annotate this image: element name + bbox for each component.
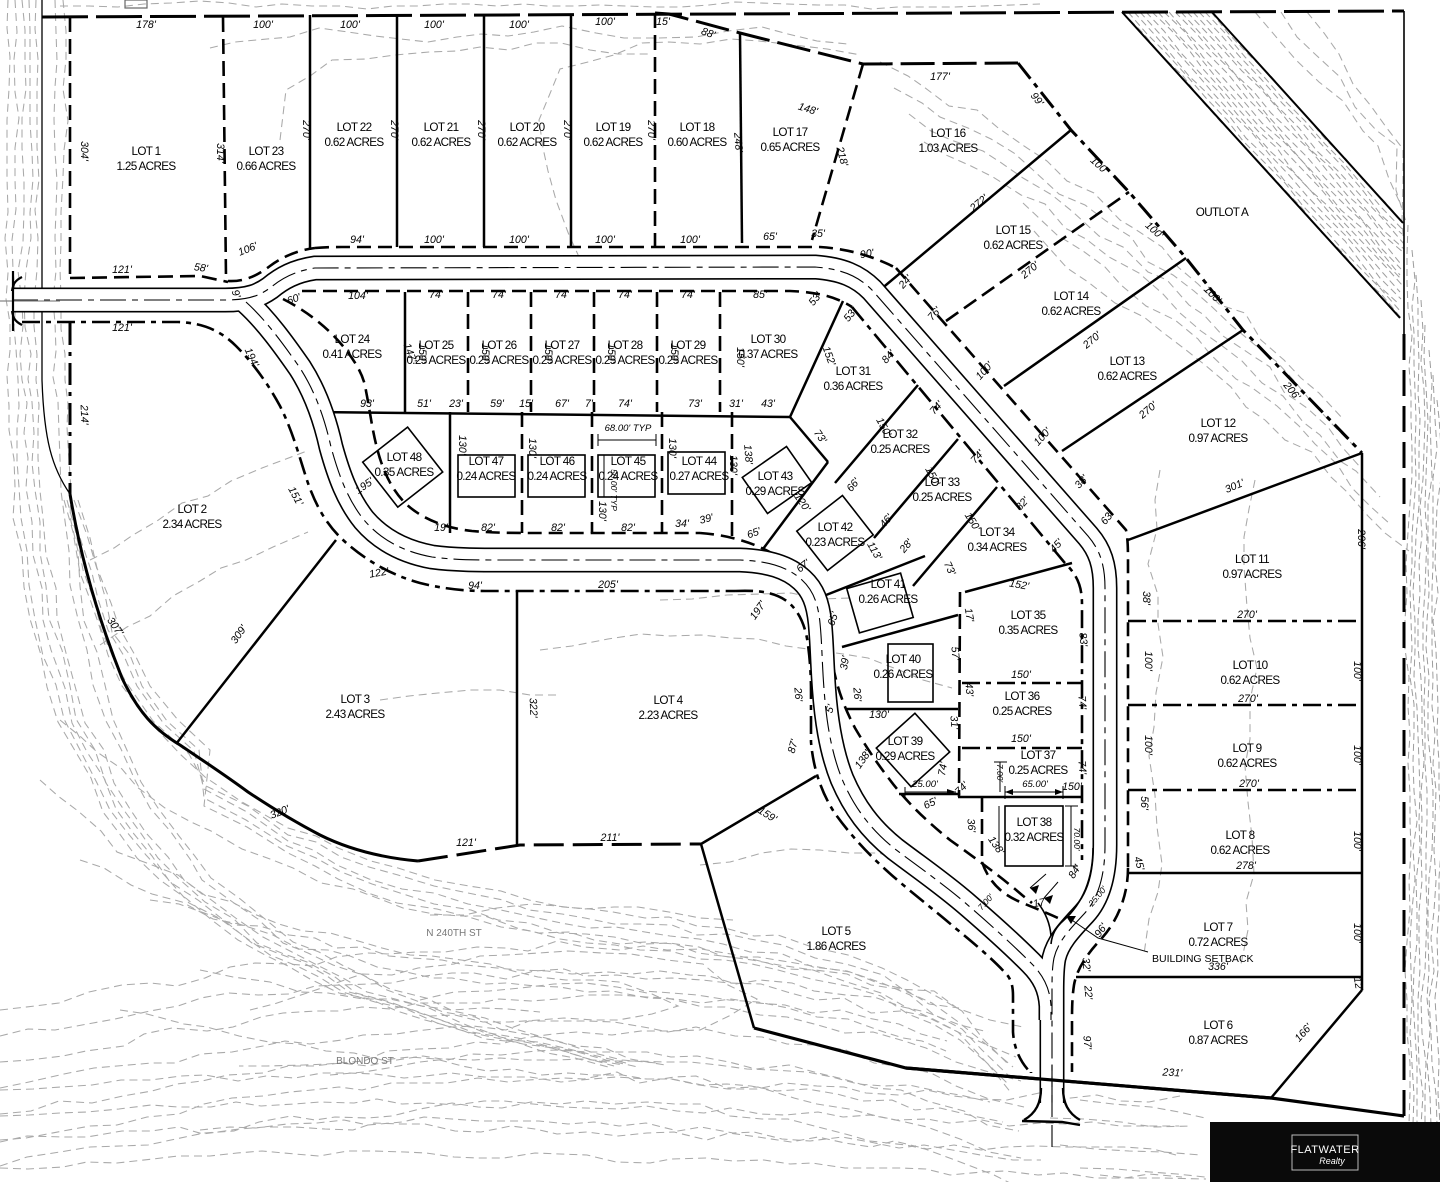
- svg-text:LOT 13: LOT 13: [1110, 355, 1145, 368]
- svg-text:130': 130': [666, 438, 678, 459]
- svg-text:0.24 ACRES: 0.24 ACRES: [456, 470, 516, 483]
- svg-text:57': 57': [948, 646, 961, 662]
- svg-text:0.36 ACRES: 0.36 ACRES: [823, 380, 883, 393]
- svg-text:2.34 ACRES: 2.34 ACRES: [162, 518, 222, 531]
- svg-text:270': 270': [475, 119, 487, 141]
- svg-text:74': 74': [1075, 695, 1088, 711]
- svg-text:0.25 ACRES: 0.25 ACRES: [992, 705, 1052, 718]
- svg-text:0.62 ACRES: 0.62 ACRES: [583, 136, 643, 149]
- svg-text:104': 104': [348, 290, 369, 302]
- svg-text:130': 130': [727, 455, 739, 476]
- svg-text:LOT 18: LOT 18: [680, 121, 715, 134]
- svg-text:70.00': 70.00': [1072, 828, 1082, 851]
- svg-text:100': 100': [509, 19, 530, 31]
- svg-text:31': 31': [947, 715, 960, 731]
- svg-text:0.37 ACRES: 0.37 ACRES: [738, 348, 798, 361]
- svg-text:0.26 ACRES: 0.26 ACRES: [858, 593, 918, 606]
- svg-text:150': 150': [1062, 781, 1083, 793]
- svg-text:OUTLOT A: OUTLOT A: [1196, 206, 1249, 219]
- svg-text:15': 15': [656, 16, 671, 28]
- svg-text:LOT 4: LOT 4: [653, 694, 683, 707]
- svg-text:178': 178': [136, 19, 157, 31]
- svg-text:73': 73': [688, 398, 703, 410]
- svg-text:7.00': 7.00': [995, 764, 1005, 783]
- svg-text:LOT 36: LOT 36: [1005, 690, 1040, 703]
- svg-text:LOT 48: LOT 48: [387, 451, 422, 464]
- svg-text:74': 74': [618, 398, 633, 410]
- svg-text:0.62 ACRES: 0.62 ACRES: [1217, 757, 1277, 770]
- svg-text:22': 22': [1081, 984, 1094, 1001]
- svg-text:94': 94': [468, 580, 483, 592]
- svg-text:97': 97': [1080, 1035, 1093, 1051]
- svg-text:LOT 41: LOT 41: [871, 578, 906, 591]
- svg-text:68.00' TYP: 68.00' TYP: [605, 423, 652, 434]
- svg-text:205': 205': [597, 579, 619, 591]
- svg-text:150': 150': [1011, 733, 1032, 745]
- svg-text:83': 83': [1076, 632, 1089, 648]
- svg-text:270': 270': [388, 119, 400, 141]
- svg-text:100': 100': [1351, 923, 1363, 944]
- svg-text:43': 43': [761, 398, 776, 410]
- svg-text:BUILDING SETBACK: BUILDING SETBACK: [1152, 953, 1254, 965]
- svg-text:36': 36': [964, 818, 977, 834]
- svg-text:121': 121': [112, 322, 133, 334]
- svg-text:100': 100': [680, 234, 701, 246]
- svg-text:121': 121': [112, 264, 133, 276]
- svg-text:LOT 9: LOT 9: [1232, 742, 1261, 755]
- svg-text:0.66 ACRES: 0.66 ACRES: [236, 160, 296, 173]
- svg-text:0.35 ACRES: 0.35 ACRES: [998, 624, 1058, 637]
- svg-text:138': 138': [741, 444, 755, 466]
- svg-text:150': 150': [479, 343, 491, 364]
- svg-text:LOT 46: LOT 46: [540, 455, 575, 468]
- svg-text:2.43 ACRES: 2.43 ACRES: [325, 708, 385, 721]
- svg-text:0.97 ACRES: 0.97 ACRES: [1188, 432, 1248, 445]
- svg-text:0.25 ACRES: 0.25 ACRES: [870, 443, 930, 456]
- svg-text:58': 58': [193, 261, 209, 275]
- svg-text:150': 150': [542, 343, 554, 364]
- svg-text:314': 314': [214, 143, 226, 164]
- svg-text:LOT 38: LOT 38: [1017, 816, 1052, 829]
- svg-text:270': 270': [1237, 693, 1259, 705]
- svg-text:LOT 23: LOT 23: [249, 145, 284, 158]
- svg-text:0.24 ACRES: 0.24 ACRES: [598, 470, 658, 483]
- svg-text:74': 74': [555, 289, 570, 301]
- svg-text:1.86 ACRES: 1.86 ACRES: [806, 940, 866, 953]
- svg-text:0.25 ACRES: 0.25 ACRES: [658, 354, 718, 367]
- svg-text:322': 322': [527, 698, 540, 719]
- svg-text:LOT 10: LOT 10: [1233, 659, 1269, 672]
- svg-text:LOT 12: LOT 12: [1201, 417, 1236, 430]
- svg-text:100': 100': [1351, 831, 1363, 852]
- svg-text:100': 100': [1351, 745, 1363, 766]
- svg-text:278': 278': [1235, 860, 1257, 872]
- svg-text:65': 65': [763, 231, 778, 243]
- svg-text:0.87 ACRES: 0.87 ACRES: [1188, 1034, 1248, 1047]
- svg-text:0.60 ACRES: 0.60 ACRES: [667, 136, 727, 149]
- svg-text:0.65 ACRES: 0.65 ACRES: [760, 141, 820, 154]
- svg-text:150': 150': [668, 343, 680, 364]
- svg-text:0.35 ACRES: 0.35 ACRES: [374, 466, 434, 479]
- svg-text:LOT 31: LOT 31: [836, 365, 871, 378]
- svg-text:38': 38': [1140, 591, 1152, 606]
- svg-text:100': 100': [1142, 651, 1154, 672]
- svg-text:85': 85': [753, 289, 768, 301]
- svg-text:LOT 37: LOT 37: [1021, 749, 1056, 762]
- svg-text:304': 304': [78, 141, 90, 162]
- svg-text:211': 211': [600, 832, 621, 844]
- svg-text:0.62 ACRES: 0.62 ACRES: [497, 136, 557, 149]
- svg-text:74': 74': [618, 289, 633, 301]
- svg-text:0.24 ACRES: 0.24 ACRES: [527, 470, 587, 483]
- svg-text:FLATWATER: FLATWATER: [1290, 1144, 1359, 1156]
- svg-text:100': 100': [595, 234, 616, 246]
- svg-text:100': 100': [509, 234, 530, 246]
- svg-text:LOT 47: LOT 47: [469, 455, 504, 468]
- svg-text:100': 100': [424, 19, 445, 31]
- svg-text:130': 130': [456, 435, 468, 456]
- svg-text:0.62 ACRES: 0.62 ACRES: [1097, 370, 1157, 383]
- svg-text:LOT 22: LOT 22: [337, 121, 372, 134]
- svg-text:56': 56': [1138, 796, 1150, 811]
- svg-text:0.26 ACRES: 0.26 ACRES: [873, 668, 933, 681]
- svg-text:2.23 ACRES: 2.23 ACRES: [638, 709, 698, 722]
- svg-text:0.34 ACRES: 0.34 ACRES: [967, 541, 1027, 554]
- svg-text:LOT 15: LOT 15: [996, 224, 1032, 237]
- svg-text:270': 270': [645, 119, 657, 141]
- svg-text:0.23 ACRES: 0.23 ACRES: [805, 536, 865, 549]
- svg-text:100': 100': [1142, 735, 1154, 756]
- svg-text:130': 130': [596, 501, 608, 522]
- svg-text:0.72 ACRES: 0.72 ACRES: [1188, 936, 1248, 949]
- svg-text:51': 51': [417, 398, 432, 410]
- svg-text:59': 59': [490, 398, 505, 410]
- svg-text:270': 270': [300, 119, 312, 141]
- svg-text:LOT 6: LOT 6: [1203, 1019, 1232, 1032]
- svg-text:LOT 16: LOT 16: [931, 127, 966, 140]
- svg-text:100': 100': [340, 19, 361, 31]
- svg-text:74': 74': [492, 289, 507, 301]
- svg-text:1.25 ACRES: 1.25 ACRES: [116, 160, 176, 173]
- svg-text:130': 130': [526, 438, 538, 459]
- svg-text:0.62 ACRES: 0.62 ACRES: [324, 136, 384, 149]
- svg-text:LOT 11: LOT 11: [1235, 553, 1269, 566]
- svg-text:0.62 ACRES: 0.62 ACRES: [1220, 674, 1280, 687]
- svg-text:231': 231': [1161, 1066, 1183, 1079]
- svg-text:26': 26': [850, 686, 863, 703]
- svg-text:0.62 ACRES: 0.62 ACRES: [1210, 844, 1270, 857]
- svg-text:26': 26': [791, 686, 804, 703]
- svg-text:248': 248': [731, 131, 745, 154]
- svg-text:206': 206': [1355, 528, 1367, 550]
- svg-text:LOT 30: LOT 30: [751, 333, 787, 346]
- svg-text:BLONDO ST: BLONDO ST: [336, 1056, 394, 1067]
- svg-text:LOT 7: LOT 7: [1203, 921, 1232, 934]
- svg-text:214': 214': [78, 404, 91, 426]
- svg-text:93': 93': [360, 398, 375, 410]
- svg-text:150': 150': [1011, 669, 1032, 681]
- svg-text:0.25 ACRES: 0.25 ACRES: [532, 354, 592, 367]
- svg-text:15': 15': [519, 398, 534, 410]
- svg-text:0.62 ACRES: 0.62 ACRES: [983, 239, 1043, 252]
- svg-text:130': 130': [869, 709, 890, 721]
- svg-text:50.00' TYP: 50.00' TYP: [609, 469, 619, 511]
- svg-text:82': 82': [621, 522, 636, 534]
- svg-text:0.25 ACRES: 0.25 ACRES: [595, 354, 655, 367]
- svg-text:LOT 45: LOT 45: [611, 455, 647, 468]
- svg-text:65.00': 65.00': [1022, 779, 1049, 790]
- svg-text:7': 7': [585, 398, 594, 410]
- svg-text:LOT 3: LOT 3: [340, 693, 369, 706]
- svg-text:0.29 ACRES: 0.29 ACRES: [875, 750, 935, 763]
- svg-text:LOT 17: LOT 17: [773, 126, 808, 139]
- svg-text:34': 34': [675, 518, 690, 530]
- svg-text:LOT 40: LOT 40: [886, 653, 922, 666]
- svg-text:67': 67': [555, 398, 570, 410]
- svg-text:31': 31': [729, 398, 744, 410]
- svg-text:23': 23': [448, 398, 464, 410]
- svg-text:LOT 43: LOT 43: [758, 470, 793, 483]
- svg-text:LOT 42: LOT 42: [818, 521, 853, 534]
- svg-text:1.03 ACRES: 1.03 ACRES: [918, 142, 978, 155]
- svg-text:LOT 35: LOT 35: [1011, 609, 1047, 622]
- svg-text:LOT 39: LOT 39: [888, 735, 923, 748]
- svg-text:270': 270': [1236, 609, 1258, 621]
- svg-text:0.62 ACRES: 0.62 ACRES: [1041, 305, 1101, 318]
- svg-text:LOT 44: LOT 44: [682, 455, 718, 468]
- svg-text:82': 82': [481, 522, 496, 534]
- svg-text:0.62 ACRES: 0.62 ACRES: [411, 136, 471, 149]
- svg-text:LOT 19: LOT 19: [596, 121, 631, 134]
- svg-text:32': 32': [1079, 957, 1092, 973]
- svg-text:100': 100': [253, 19, 274, 31]
- svg-text:LOT 20: LOT 20: [510, 121, 546, 134]
- svg-text:100': 100': [424, 234, 445, 246]
- svg-text:Realty: Realty: [1319, 1156, 1345, 1166]
- svg-text:74': 74': [1075, 760, 1088, 776]
- svg-text:150': 150': [734, 347, 746, 368]
- svg-text:LOT 8: LOT 8: [1225, 829, 1254, 842]
- svg-text:0.97 ACRES: 0.97 ACRES: [1222, 568, 1282, 581]
- svg-text:82': 82': [551, 522, 566, 534]
- svg-text:0.32 ACRES: 0.32 ACRES: [1004, 831, 1064, 844]
- svg-text:0.25 ACRES: 0.25 ACRES: [469, 354, 529, 367]
- svg-text:LOT 2: LOT 2: [177, 503, 206, 516]
- svg-text:0.41 ACRES: 0.41 ACRES: [322, 348, 382, 361]
- svg-text:121': 121': [456, 837, 477, 849]
- svg-text:N 240TH ST: N 240TH ST: [426, 928, 482, 939]
- svg-text:LOT 1: LOT 1: [131, 145, 160, 158]
- svg-text:35': 35': [811, 228, 826, 240]
- svg-text:43': 43': [962, 682, 975, 698]
- svg-text:270': 270': [561, 119, 573, 141]
- svg-text:25.00': 25.00': [911, 779, 939, 790]
- svg-text:LOT 24: LOT 24: [335, 333, 371, 346]
- svg-text:270': 270': [1238, 778, 1260, 790]
- svg-text:100': 100': [595, 16, 616, 28]
- svg-text:0.27 ACRES: 0.27 ACRES: [669, 470, 729, 483]
- svg-text:150': 150': [416, 343, 428, 364]
- svg-text:LOT 5: LOT 5: [821, 925, 851, 938]
- svg-text:LOT 34: LOT 34: [980, 526, 1016, 539]
- svg-text:100': 100': [1351, 661, 1363, 682]
- svg-text:0.25 ACRES: 0.25 ACRES: [912, 491, 972, 504]
- svg-text:94': 94': [350, 234, 365, 246]
- svg-text:0.25 ACRES: 0.25 ACRES: [1008, 764, 1068, 777]
- svg-text:19': 19': [434, 522, 449, 534]
- svg-text:LOT 21: LOT 21: [424, 121, 459, 134]
- svg-text:74': 74': [681, 289, 696, 301]
- svg-text:150': 150': [605, 343, 617, 364]
- svg-text:177': 177': [930, 71, 951, 83]
- svg-text:LOT 14: LOT 14: [1054, 290, 1090, 303]
- svg-text:74': 74': [429, 289, 444, 301]
